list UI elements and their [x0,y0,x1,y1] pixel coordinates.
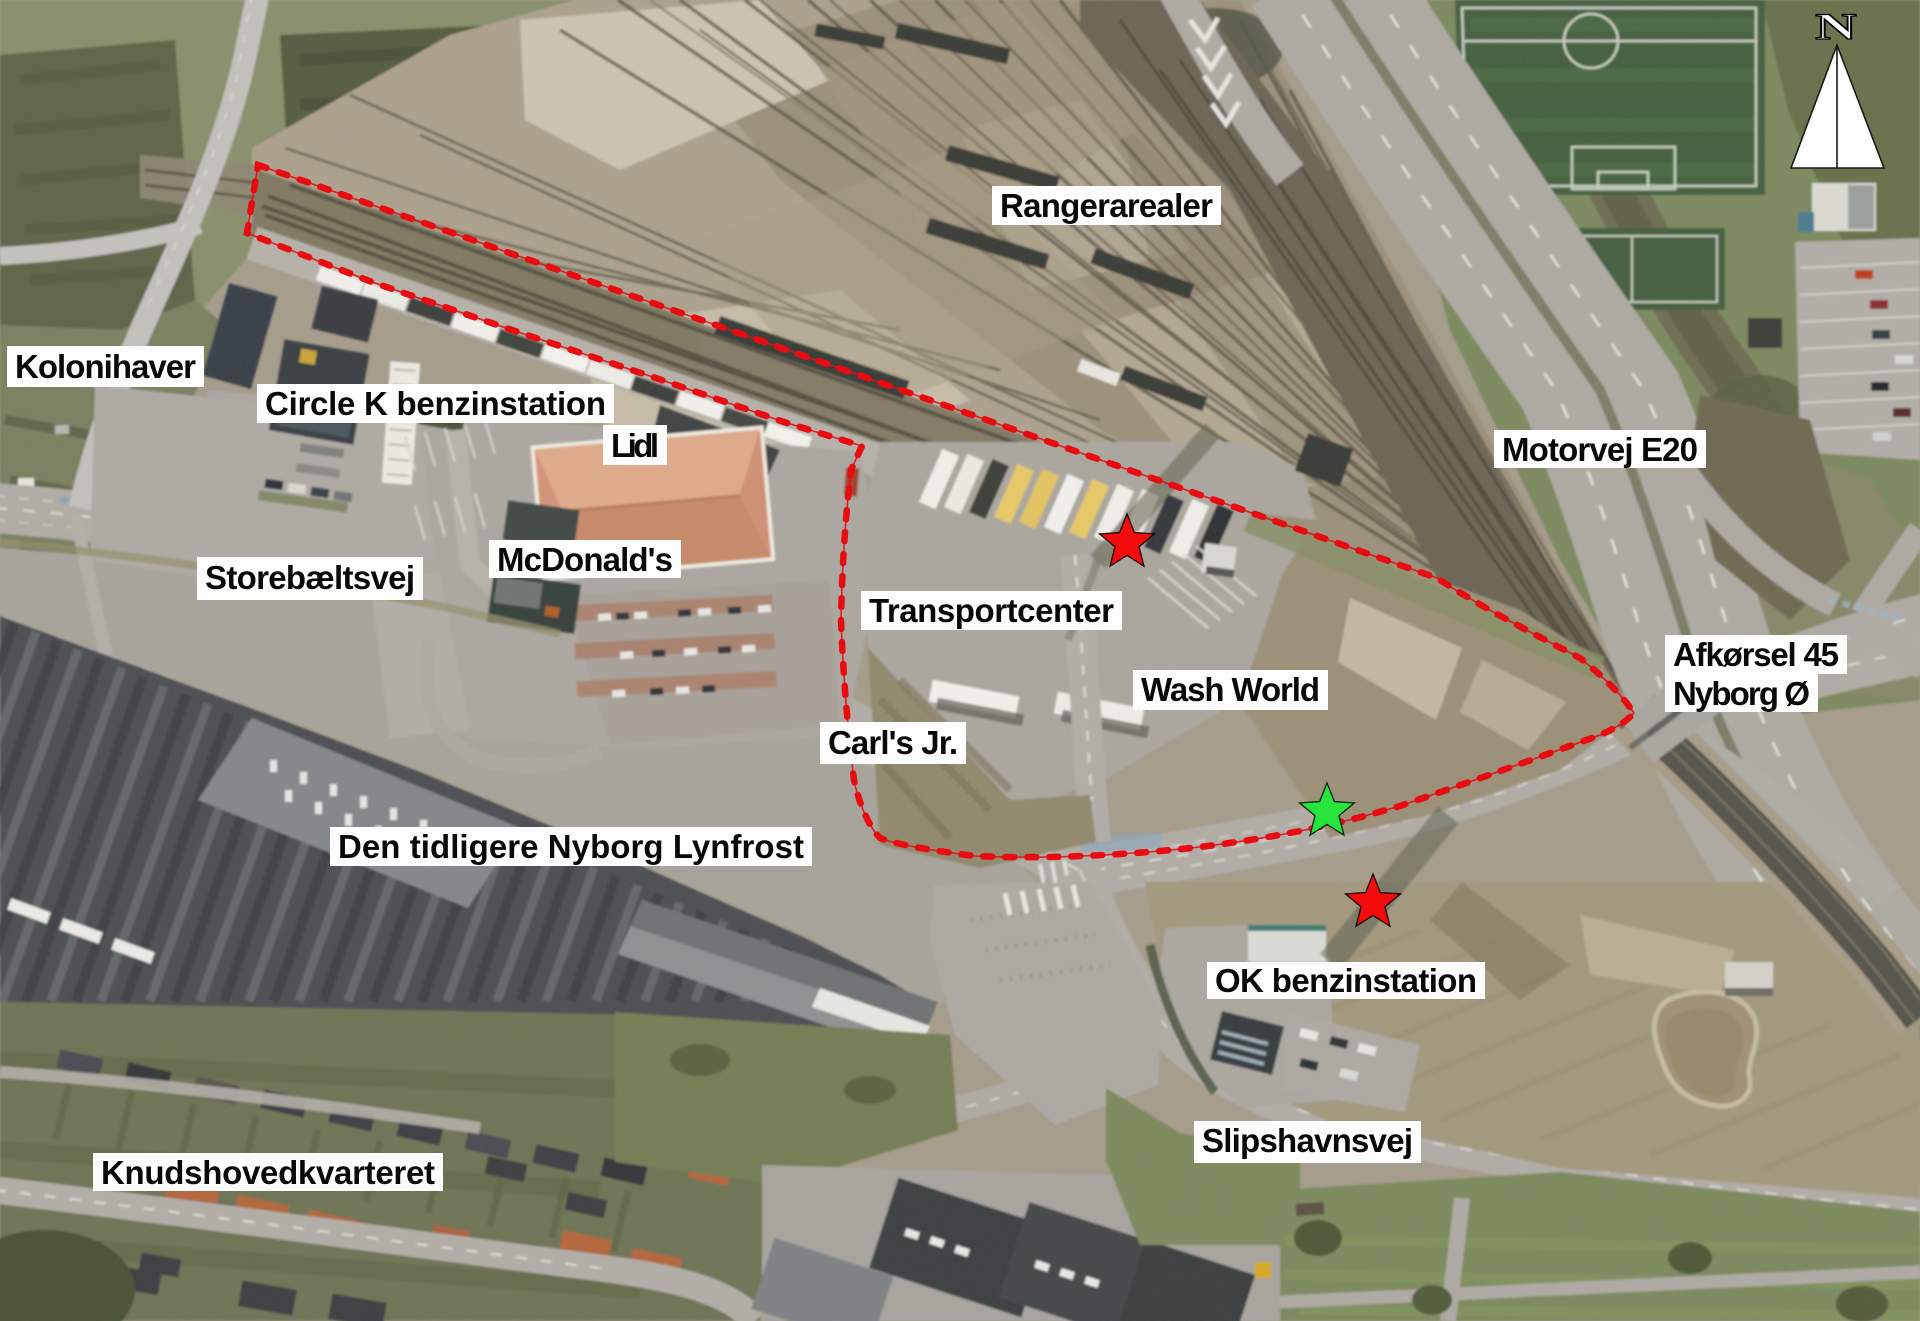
svg-text:Kolonihaver: Kolonihaver [15,348,196,385]
svg-text:Transportcenter: Transportcenter [869,592,1114,629]
svg-text:OK benzinstation: OK benzinstation [1215,962,1477,999]
svg-text:N: N [1815,7,1857,48]
svg-text:Nyborg Ø: Nyborg Ø [1673,675,1810,712]
svg-text:Afkørsel 45: Afkørsel 45 [1673,636,1839,673]
svg-text:Slipshavnsvej: Slipshavnsvej [1202,1122,1413,1159]
svg-text:Circle K benzinstation: Circle K benzinstation [265,385,606,422]
svg-text:Carl's Jr.: Carl's Jr. [828,724,958,761]
svg-text:Motorvej E20: Motorvej E20 [1502,431,1698,468]
svg-text:Rangerarealer: Rangerarealer [1000,187,1213,224]
svg-text:Storebæltsvej: Storebæltsvej [205,559,415,596]
svg-text:Knudshovedkvarteret: Knudshovedkvarteret [101,1154,435,1191]
svg-text:Den tidligere Nyborg Lynfrost: Den tidligere Nyborg Lynfrost [338,828,804,865]
svg-text:McDonald's: McDonald's [497,541,673,578]
svg-text:Lidl: Lidl [611,427,659,464]
svg-text:Wash World: Wash World [1141,671,1320,708]
